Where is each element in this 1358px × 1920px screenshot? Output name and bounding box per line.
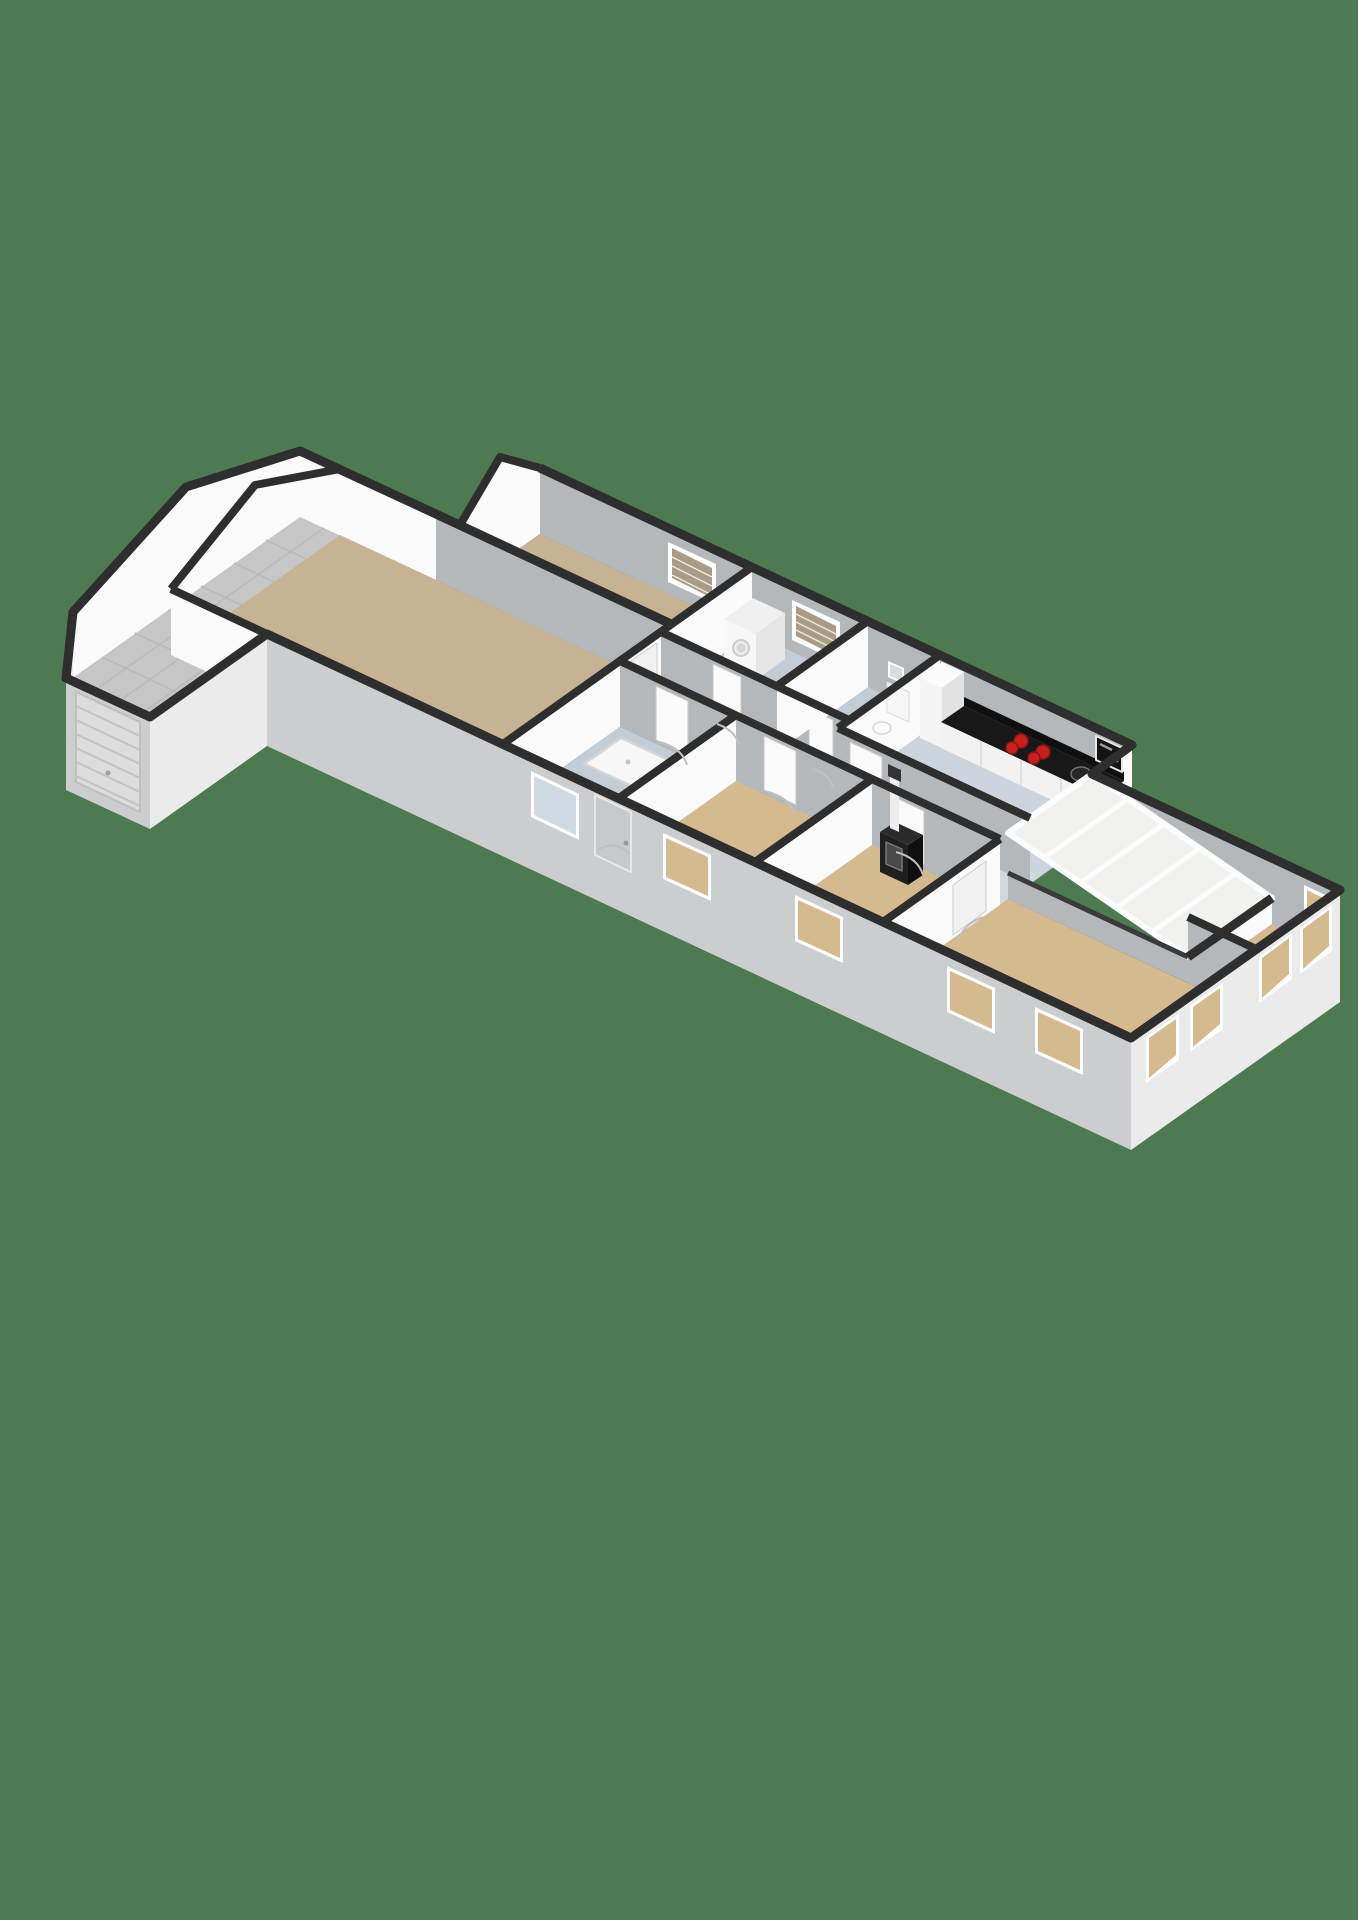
floorplan-svg: [0, 0, 1358, 1920]
chimney: [890, 772, 899, 832]
garage-door-handle: [106, 771, 111, 776]
toilet-bowl: [873, 722, 891, 734]
cooktop-burner: [1006, 742, 1018, 754]
shower-drain: [626, 760, 631, 765]
front-door-handle: [624, 841, 629, 846]
cooktop-burner: [1028, 752, 1040, 764]
floorplan-canvas: [0, 0, 1358, 1920]
washer-door-glass: [737, 644, 746, 653]
fridge-front: [920, 678, 942, 748]
